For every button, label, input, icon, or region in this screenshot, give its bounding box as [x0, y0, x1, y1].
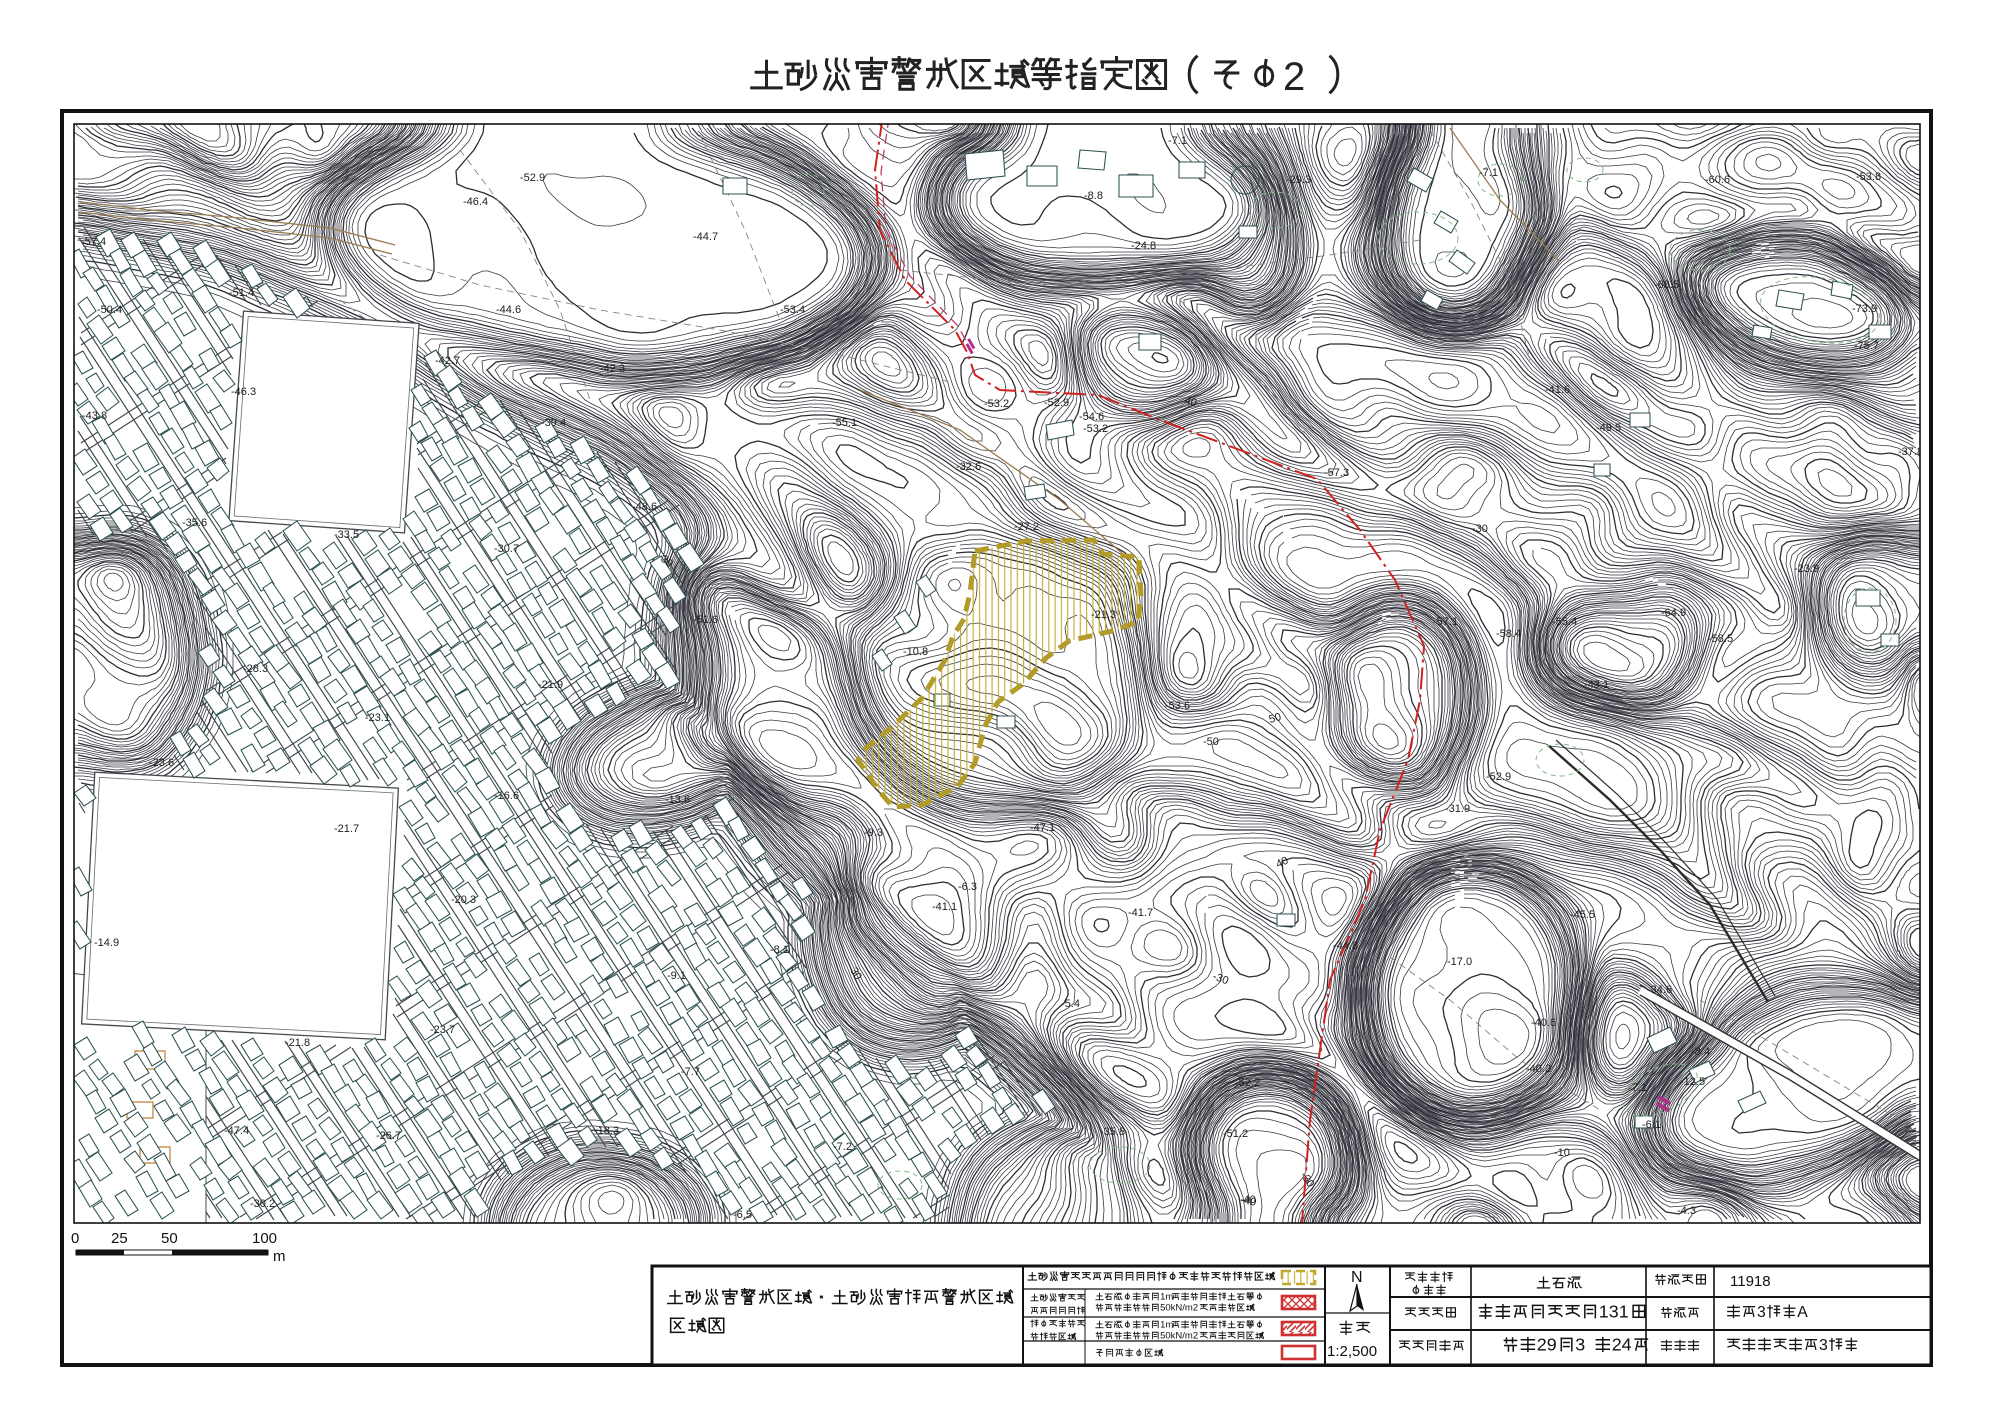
- svg-text:-42.7: -42.7: [435, 355, 460, 367]
- svg-text:-24.8: -24.8: [1131, 240, 1156, 252]
- svg-text:2: 2: [1283, 55, 1305, 99]
- svg-text:-73.9: -73.9: [1852, 303, 1877, 315]
- svg-text:-49.5: -49.5: [1596, 422, 1621, 434]
- svg-text:-60.6: -60.6: [1705, 174, 1730, 186]
- svg-text:-27.2: -27.2: [1014, 521, 1039, 533]
- svg-text:-12.5: -12.5: [1680, 1076, 1705, 1088]
- svg-text:-48.6: -48.6: [632, 501, 657, 513]
- svg-text:-52.9: -52.9: [520, 172, 545, 184]
- svg-text:-4.3: -4.3: [1677, 1205, 1696, 1217]
- svg-text:-50.4: -50.4: [97, 304, 122, 316]
- svg-text:-51.4: -51.4: [229, 287, 254, 299]
- svg-text:-57.4: -57.4: [81, 236, 106, 248]
- svg-text:-30.7: -30.7: [494, 543, 519, 555]
- svg-text:-52.9: -52.9: [1044, 397, 1069, 409]
- svg-text:-18.3: -18.3: [594, 1125, 619, 1137]
- svg-text:-41.6: -41.6: [1545, 384, 1570, 396]
- svg-text:24: 24: [1612, 1335, 1632, 1355]
- svg-text:-17.0: -17.0: [1447, 956, 1472, 968]
- svg-text:-58.5: -58.5: [1708, 633, 1733, 645]
- svg-text:-7.7: -7.7: [681, 1066, 700, 1078]
- svg-text:131: 131: [1599, 1302, 1629, 1322]
- svg-text:-44.6: -44.6: [496, 304, 521, 316]
- svg-text:-23.9: -23.9: [1794, 563, 1819, 575]
- svg-text:-64.9: -64.9: [1661, 607, 1686, 619]
- svg-text:-50: -50: [1203, 736, 1219, 748]
- svg-text:3: 3: [1575, 1335, 1585, 1355]
- svg-text:-58.4: -58.4: [1496, 628, 1521, 640]
- svg-text:-7.1: -7.1: [1628, 1082, 1647, 1094]
- svg-text:-9.1: -9.1: [667, 970, 686, 982]
- svg-text:-47.4: -47.4: [224, 1125, 249, 1137]
- svg-text:100: 100: [252, 1230, 277, 1247]
- svg-text:-52.2: -52.2: [1235, 1077, 1260, 1089]
- svg-text:-8.8: -8.8: [1084, 190, 1103, 202]
- svg-text:-53.6: -53.6: [1165, 700, 1190, 712]
- svg-text:-6.3: -6.3: [958, 881, 977, 893]
- svg-text:-10.8: -10.8: [903, 646, 928, 658]
- svg-text:0: 0: [71, 1230, 79, 1247]
- svg-text:-31.9: -31.9: [1445, 803, 1470, 815]
- svg-text:-57.1: -57.1: [1433, 616, 1458, 628]
- svg-text:-53.2: -53.2: [984, 398, 1009, 410]
- svg-text:50kN/m2: 50kN/m2: [1160, 1331, 1198, 1342]
- svg-text:-68.5: -68.5: [1654, 279, 1679, 291]
- svg-text:-30: -30: [1472, 523, 1488, 535]
- svg-text:-40.6: -40.6: [1531, 1017, 1556, 1029]
- svg-text:-41.1: -41.1: [932, 901, 957, 913]
- svg-text:-41.7: -41.7: [1128, 907, 1153, 919]
- svg-text:-7.1: -7.1: [1168, 135, 1187, 147]
- svg-text:-45.5: -45.5: [1570, 909, 1595, 921]
- svg-text:1m: 1m: [1160, 1292, 1173, 1303]
- svg-text:-46.3: -46.3: [231, 386, 256, 398]
- svg-text:-43.8: -43.8: [82, 410, 107, 422]
- svg-text:40: 40: [1183, 395, 1197, 409]
- svg-text:-21.3: -21.3: [1091, 609, 1116, 621]
- svg-text:-6.5: -6.5: [733, 1209, 752, 1221]
- svg-text:-53.2: -53.2: [1083, 423, 1108, 435]
- svg-text:m: m: [273, 1248, 286, 1265]
- svg-text:-57.3: -57.3: [1324, 467, 1349, 479]
- svg-text:1:2,500: 1:2,500: [1327, 1343, 1377, 1360]
- svg-text:-30.2: -30.2: [250, 1198, 275, 1210]
- svg-text:-10: -10: [1554, 1147, 1570, 1159]
- svg-text:-23.6: -23.6: [149, 757, 174, 769]
- svg-text:1m: 1m: [1160, 1320, 1173, 1331]
- svg-text:-52.9: -52.9: [1486, 771, 1511, 783]
- svg-text:A: A: [1797, 1304, 1808, 1321]
- svg-text:-42.3: -42.3: [600, 363, 625, 375]
- svg-text:3: 3: [1819, 1337, 1828, 1354]
- svg-text:-55.1: -55.1: [832, 417, 857, 429]
- svg-text:25: 25: [111, 1230, 128, 1247]
- svg-text:-32.6: -32.6: [956, 461, 981, 473]
- svg-text:N: N: [1351, 1269, 1363, 1286]
- svg-text:-46.4: -46.4: [463, 196, 488, 208]
- svg-text:3: 3: [1757, 1304, 1766, 1321]
- svg-text:-33.5: -33.5: [334, 529, 359, 541]
- svg-text:-35.8: -35.8: [1100, 1126, 1125, 1138]
- svg-text:-6.1: -6.1: [1642, 1119, 1661, 1131]
- svg-text:-23.1: -23.1: [365, 712, 390, 724]
- svg-text:-7.2: -7.2: [833, 1141, 852, 1153]
- svg-text:-16.6: -16.6: [494, 790, 519, 802]
- svg-text:50kN/m2: 50kN/m2: [1160, 1303, 1198, 1314]
- svg-text:-43.1: -43.1: [1584, 679, 1609, 691]
- svg-text:-21.8: -21.8: [285, 1037, 310, 1049]
- svg-text:-44.8: -44.8: [1333, 940, 1358, 952]
- svg-text:-8.4: -8.4: [1691, 1046, 1710, 1058]
- svg-text:-9.3: -9.3: [864, 827, 883, 839]
- svg-text:-5.4: -5.4: [1061, 998, 1080, 1010]
- svg-text:-53.4: -53.4: [780, 304, 805, 316]
- svg-text:-39.4: -39.4: [541, 417, 566, 429]
- svg-text:29: 29: [1537, 1335, 1557, 1355]
- svg-text:-8.1: -8.1: [770, 944, 789, 956]
- svg-text:-23.7: -23.7: [430, 1024, 455, 1036]
- svg-text:-21.7: -21.7: [334, 823, 359, 835]
- svg-text:50: 50: [161, 1230, 178, 1247]
- svg-text:-26.7: -26.7: [376, 1130, 401, 1142]
- svg-text:-54.6: -54.6: [1079, 411, 1104, 423]
- svg-text:-40.2: -40.2: [1526, 1063, 1551, 1075]
- svg-text:-7.1: -7.1: [1479, 167, 1498, 179]
- svg-text:-44.7: -44.7: [693, 231, 718, 243]
- svg-text:-75.7: -75.7: [1854, 340, 1879, 352]
- svg-text:-53.8: -53.8: [1856, 171, 1881, 183]
- svg-text:-21.9: -21.9: [538, 679, 563, 691]
- svg-text:-14.9: -14.9: [94, 937, 119, 949]
- svg-text:-13.6: -13.6: [665, 794, 690, 806]
- svg-text:-20.3: -20.3: [451, 894, 476, 906]
- svg-text:-51.6: -51.6: [693, 614, 718, 626]
- svg-text:-51.2: -51.2: [1223, 1128, 1248, 1140]
- svg-text:11918: 11918: [1730, 1273, 1771, 1290]
- svg-text:-35.6: -35.6: [182, 517, 207, 529]
- svg-text:-29.3: -29.3: [1286, 174, 1311, 186]
- svg-text:-55.4: -55.4: [1552, 616, 1577, 628]
- svg-text:-28.3: -28.3: [243, 663, 268, 675]
- svg-text:-34.6: -34.6: [1647, 984, 1672, 996]
- svg-text:-47.1: -47.1: [1030, 822, 1055, 834]
